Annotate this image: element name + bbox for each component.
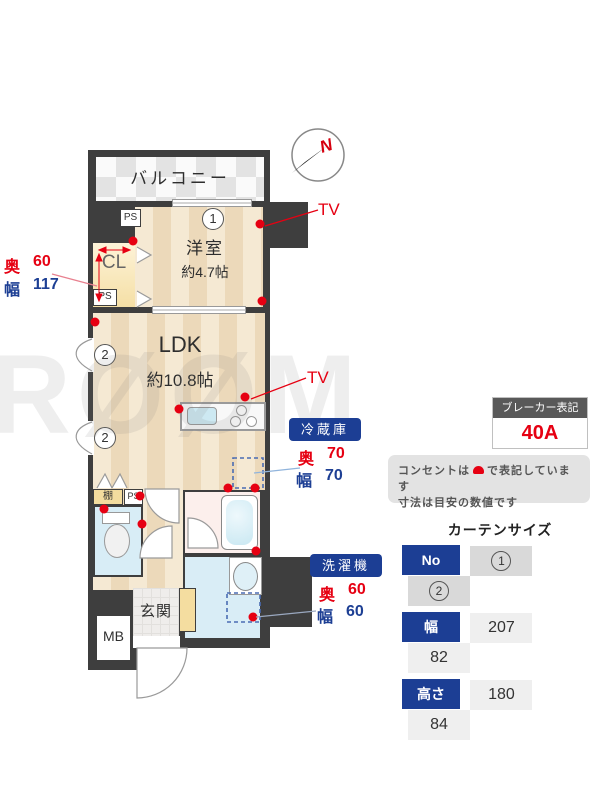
shoe-cabinet — [179, 588, 196, 632]
fridge-depth-dim: 奥 70 — [298, 445, 345, 469]
curtain-marker-2b: 2 — [94, 427, 116, 449]
curtain-marker-1: 1 — [202, 208, 224, 230]
width-value: 70 — [325, 467, 343, 491]
note-text: コンセントは — [398, 465, 470, 477]
pipe-space-closet: PS — [93, 289, 117, 306]
washbasin-bowl-icon — [233, 562, 258, 591]
pillar-bottom-right — [270, 557, 312, 627]
entrance-label: 玄関 — [133, 600, 179, 621]
compass-needle-icon — [292, 146, 327, 173]
fridge-tag: 冷蔵庫 — [289, 418, 361, 441]
curtain-table-title: カーテンサイズ — [402, 520, 598, 540]
curtain-header-no: No — [402, 545, 460, 575]
ps-label: PS — [98, 291, 111, 302]
curtain-row-no: No 1 2 — [402, 545, 600, 606]
pipe-space-top: PS — [120, 209, 141, 227]
curtain-row-width: 幅 207 82 — [402, 612, 600, 673]
curtain-height-1: 180 — [470, 680, 532, 710]
stove-burner-icon — [230, 416, 241, 427]
compass: N — [292, 129, 344, 181]
stove-burner-icon — [246, 416, 257, 427]
compass-circle — [292, 129, 344, 181]
pillar-top-right — [270, 202, 308, 248]
curtain-width-1: 207 — [470, 613, 532, 643]
balcony-label: バルコニー — [96, 164, 264, 189]
kitchen-sink — [187, 407, 217, 425]
fridge-width-dim: 幅 70 — [296, 467, 343, 491]
notes-box: コンセントはで表記しています 寸法は目安の数値です — [388, 455, 590, 503]
window-opening-2 — [87, 421, 94, 455]
ps-label: PS — [124, 212, 137, 223]
closet-depth-dim: 奥 60 — [4, 253, 51, 277]
width-value: 117 — [33, 276, 59, 300]
shelf-label: 棚 — [103, 491, 113, 502]
curtain-marker-2-cell: 2 — [429, 581, 449, 601]
width-value: 60 — [346, 603, 364, 627]
washer-tag: 洗濯機 — [310, 554, 382, 577]
sliding-door — [152, 306, 246, 314]
breaker-value: 40A — [493, 418, 587, 448]
marker-number: 2 — [101, 430, 108, 445]
depth-value: 70 — [327, 445, 345, 469]
washer-width-dim: 幅 60 — [317, 603, 364, 627]
depth-value: 60 — [348, 581, 366, 605]
toilet-bowl-icon — [104, 524, 130, 558]
marker-number: 1 — [209, 211, 216, 226]
curtain-header-width: 幅 — [402, 612, 460, 642]
curtain-col-1: 1 — [470, 546, 532, 576]
entrance-opening — [133, 636, 180, 648]
ldk-size-label: 約10.8帖 — [110, 366, 250, 391]
depth-label: 奥 — [4, 253, 20, 277]
closet-width-dim: 幅 117 — [4, 276, 59, 300]
curtain-header-height: 高さ — [402, 679, 460, 709]
depth-label: 奥 — [319, 581, 335, 605]
ps-label: PS — [127, 491, 139, 501]
curtain-table: No 1 2 幅 207 82 高さ 180 84 — [402, 545, 600, 740]
tv-label-1: TV — [318, 200, 340, 220]
curtain-height-2: 84 — [408, 710, 470, 740]
bedroom-size-label: 約4.7帖 — [150, 262, 260, 282]
depth-value: 60 — [33, 253, 51, 277]
stove-burner-icon — [236, 405, 247, 416]
curtain-row-height: 高さ 180 84 — [402, 679, 600, 740]
outlet-symbol-icon — [473, 466, 484, 474]
breaker-title: ブレーカー表記 — [493, 398, 587, 418]
breaker-box: ブレーカー表記 40A — [492, 397, 588, 449]
pipe-space-toilet: PS — [124, 489, 143, 505]
floorplan-page: PS PS PS 棚 バルコニー 洋室 約4.7帖 LDK 約10.8帖 CL … — [0, 0, 600, 800]
door-entrance — [137, 648, 187, 698]
closet-label: CL — [95, 252, 133, 274]
ldk-label: LDK — [110, 332, 250, 358]
note-line-1: コンセントはで表記しています — [398, 463, 580, 495]
width-label: 幅 — [296, 467, 312, 491]
curtain-width-2: 82 — [408, 643, 470, 673]
meter-box-label: MB — [95, 628, 132, 644]
curtain-marker-2a: 2 — [94, 344, 116, 366]
bedroom-label: 洋室 — [150, 234, 260, 259]
balcony-window — [172, 199, 252, 207]
bathtub-water — [226, 500, 253, 545]
washer-depth-dim: 奥 60 — [319, 581, 366, 605]
depth-label: 奥 — [298, 445, 314, 469]
shelf-box: 棚 — [93, 489, 123, 505]
note-line-2: 寸法は目安の数値です — [398, 495, 580, 511]
marker-number: 2 — [101, 347, 108, 362]
window-opening-1 — [87, 338, 94, 372]
toilet-tank-icon — [102, 512, 130, 524]
curtain-marker-1-cell: 1 — [491, 551, 511, 571]
tv-label-2: TV — [307, 368, 329, 388]
compass-north-label: N — [317, 135, 335, 157]
curtain-col-2: 2 — [408, 576, 470, 606]
width-label: 幅 — [4, 276, 20, 300]
width-label: 幅 — [317, 603, 333, 627]
